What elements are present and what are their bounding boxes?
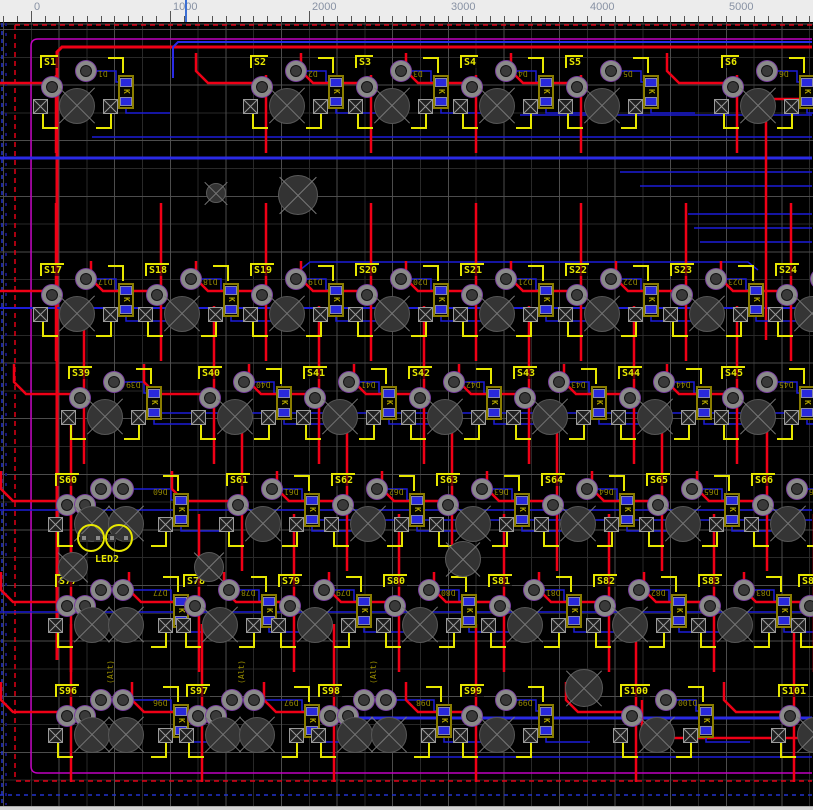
alignment-pad-icon (639, 517, 654, 532)
switch-footprint[interactable]: S98(Alt)KD98 (312, 682, 452, 762)
silkscreen-corner-icon (357, 113, 373, 129)
silkscreen-corner-icon (151, 531, 167, 547)
alignment-pad-icon (158, 728, 173, 743)
switch-footprint[interactable]: S83KD83 (692, 572, 792, 652)
switch-stem (217, 399, 253, 435)
cathode-mark-icon: K (570, 608, 578, 618)
silkscreen-corner-icon (754, 632, 770, 648)
diode-reference-label: D1 (98, 69, 108, 77)
cathode-mark-icon: K (332, 89, 340, 99)
switch-footprint[interactable]: S4KD4 (454, 53, 554, 133)
led-pad (122, 534, 130, 542)
through-hole-pad (314, 580, 334, 600)
silkscreen-corner-icon (411, 113, 427, 129)
switch-footprint[interactable]: S64KD64 (535, 471, 635, 551)
alignment-pad-icon (418, 99, 433, 114)
diode-reference-label: D39 (126, 380, 140, 388)
smd-pad (516, 496, 528, 505)
switch-reference-label: S21 (460, 263, 484, 276)
smd-pad (568, 597, 580, 606)
silkscreen-corner-icon (252, 321, 268, 337)
led-pad (94, 534, 102, 542)
diode-reference-label: D41 (361, 380, 375, 388)
alignment-pad-icon (576, 410, 591, 425)
diode-footprint: K (146, 386, 162, 420)
silkscreen-corner-icon (620, 424, 636, 440)
diode-footprint: K (436, 704, 452, 738)
switch-reference-label: S4 (460, 55, 478, 68)
silkscreen-corner-icon (359, 424, 375, 440)
silkscreen-corner-icon (411, 321, 427, 337)
silkscreen-corner-icon (648, 531, 664, 547)
through-hole-pad (113, 690, 133, 710)
cathode-mark-icon: K (803, 89, 811, 99)
switch-footprint[interactable]: S45KD45 (715, 364, 813, 444)
diode-reference-label: D77 (153, 588, 167, 596)
silkscreen-corner-icon (439, 632, 455, 648)
alignment-pad-icon (784, 99, 799, 114)
diode-reference-label: D17 (98, 277, 112, 285)
switch-footprint[interactable]: S101KD101 (772, 682, 813, 762)
switch-reference-label: S44 (618, 366, 642, 379)
diode-footprint: K (799, 386, 813, 420)
diode-reference-label: D40 (256, 380, 270, 388)
smd-pad (540, 707, 552, 716)
diode-footprint: K (461, 594, 477, 628)
silkscreen-corner-icon (318, 57, 334, 73)
diode-reference-label: D20 (413, 277, 427, 285)
silkscreen-corner-icon (188, 742, 204, 758)
diode-footprint: K (486, 386, 502, 420)
cathode-mark-icon: K (465, 608, 473, 618)
alignment-pad-icon (681, 410, 696, 425)
switch-footprint[interactable]: S80KD80 (377, 572, 477, 652)
silkscreen-corner-icon (320, 742, 336, 758)
diode-footprint: K (304, 493, 320, 527)
ruler-unit-label: 3000 (451, 1, 475, 13)
silkscreen-corner-icon (726, 321, 742, 337)
switch-stem (205, 717, 241, 753)
silkscreen-corner-icon (597, 531, 613, 547)
alignment-pad-icon (366, 410, 381, 425)
switch-footprint[interactable]: S84KD84 (792, 572, 813, 652)
through-hole-pad (91, 690, 111, 710)
ruler-tick (31, 11, 32, 22)
switch-footprint[interactable]: S82KD82 (587, 572, 687, 652)
switch-footprint[interactable]: S100KD100 (614, 682, 714, 762)
diode-reference-label: D62 (389, 487, 403, 495)
through-hole-pad (234, 372, 254, 392)
switch-footprint[interactable]: S24KD24 (769, 261, 813, 341)
alignment-pad-icon (179, 728, 194, 743)
switch-reference-label: S23 (670, 263, 694, 276)
alignment-pad-icon (453, 99, 468, 114)
through-hole-pad (601, 269, 621, 289)
cathode-mark-icon: K (542, 89, 550, 99)
switch-reference-label: S82 (593, 574, 617, 587)
switch-footprint[interactable]: S17KD17 (34, 261, 134, 341)
silkscreen-corner-icon (70, 424, 86, 440)
switch-stem (770, 506, 806, 542)
alignment-pad-icon (289, 728, 304, 743)
switch-stem (59, 296, 95, 332)
diode-footprint: K (748, 283, 764, 317)
silkscreen-corner-icon (672, 321, 688, 337)
switch-stem (479, 717, 515, 753)
diode-footprint: K (118, 75, 134, 109)
silkscreen-corner-icon (385, 632, 401, 648)
silkscreen-corner-icon (543, 531, 559, 547)
diode-footprint: K (724, 493, 740, 527)
switch-stem (402, 607, 438, 643)
alignment-pad-icon (691, 618, 706, 633)
through-hole-pad (376, 690, 396, 710)
switch-footprint[interactable]: S42KD42 (402, 364, 502, 444)
diode-reference-label: D96 (153, 698, 167, 706)
diode-reference-label: D42 (466, 380, 480, 388)
switch-footprint[interactable]: S63KD63 (430, 471, 530, 551)
switch-footprint[interactable]: S20KD20 (349, 261, 449, 341)
diode-reference-label: D45 (779, 380, 793, 388)
diode-footprint: K (328, 75, 344, 109)
diode-footprint: K (538, 704, 554, 738)
smd-pad (330, 286, 342, 295)
switch-stem (108, 607, 144, 643)
switch-stem (612, 607, 648, 643)
smd-pad (698, 389, 710, 398)
silkscreen-corner-icon (306, 113, 322, 129)
switch-stem (164, 296, 200, 332)
alignment-pad-icon (348, 307, 363, 322)
switch-footprint[interactable]: S99KD99 (454, 682, 554, 762)
switch-stem (665, 506, 701, 542)
smd-pad (411, 496, 423, 505)
switch-reference-label: S98 (318, 684, 342, 697)
switch-stem (532, 399, 568, 435)
silkscreen-corner-icon (239, 632, 255, 648)
switch-stem (269, 296, 305, 332)
alignment-pad-icon (791, 618, 806, 633)
switch-stem (374, 296, 410, 332)
cathode-mark-icon: K (385, 400, 393, 410)
diode-footprint: K (538, 75, 554, 109)
cathode-mark-icon: K (227, 297, 235, 307)
alignment-pad-icon (324, 517, 339, 532)
smd-pad (673, 597, 685, 606)
silkscreen-corner-icon (201, 321, 217, 337)
switch-stem (108, 717, 144, 753)
diode-footprint: K (566, 594, 582, 628)
silkscreen-corner-icon (96, 113, 112, 129)
switch-stem (245, 506, 281, 542)
alignment-pad-icon (313, 307, 328, 322)
switch-footprint[interactable]: S41KD41 (297, 364, 397, 444)
diode-footprint: K (538, 283, 554, 317)
silkscreen-corner-icon (544, 632, 560, 648)
alignment-pad-icon (471, 410, 486, 425)
switch-reference-label: S40 (198, 366, 222, 379)
cathode-mark-icon: K (332, 297, 340, 307)
through-hole-pad (419, 580, 439, 600)
diode-reference-label: D78 (241, 588, 255, 596)
through-hole-pad (629, 580, 649, 600)
switch-stem (740, 399, 776, 435)
through-hole-pad (391, 61, 411, 81)
switch-stem (74, 607, 110, 643)
diode-reference-label: D60 (153, 487, 167, 495)
switch-footprint[interactable]: S6KD6 (715, 53, 813, 133)
horizontal-ruler[interactable]: 010002000300040005000 (0, 0, 813, 23)
smd-pad (621, 496, 633, 505)
alignment-pad-icon (523, 307, 538, 322)
alignment-pad-icon (744, 517, 759, 532)
switch-footprint[interactable]: S39KD39 (62, 364, 162, 444)
diode-footprint: K (409, 493, 425, 527)
silkscreen-corner-icon (280, 632, 296, 648)
silkscreen-corner-icon (516, 742, 532, 758)
switch-stem (371, 717, 407, 753)
switch-stem (337, 717, 373, 753)
alignment-pad-icon (771, 728, 786, 743)
diode-reference-label: D83 (756, 588, 770, 596)
switch-caption-label: (Alt) (370, 660, 378, 684)
through-hole-pad (113, 580, 133, 600)
alignment-pad-icon (523, 99, 538, 114)
mounting-hole (278, 175, 318, 215)
through-hole-pad (262, 479, 282, 499)
switch-reference-label: S45 (721, 366, 745, 379)
switch-stem (797, 717, 813, 753)
silkscreen-corner-icon (674, 424, 690, 440)
switch-reference-label: S17 (40, 263, 64, 276)
through-hole-pad (113, 479, 133, 499)
smd-pad (488, 389, 500, 398)
silkscreen-corner-icon (569, 424, 585, 440)
alignment-pad-icon (784, 410, 799, 425)
alignment-pad-icon (421, 728, 436, 743)
switch-footprint[interactable]: S43KD43 (507, 364, 607, 444)
through-hole-pad (339, 372, 359, 392)
switch-footprint[interactable]: S77KD77 (49, 572, 189, 652)
switch-reference-label: S63 (436, 473, 460, 486)
switch-stem (584, 88, 620, 124)
silkscreen-corner-icon (151, 742, 167, 758)
diode-footprint: K (776, 594, 792, 628)
silkscreen-corner-icon (516, 321, 532, 337)
switch-reference-label: S65 (646, 473, 670, 486)
led-pad-ring (105, 524, 133, 552)
cathode-mark-icon: K (437, 297, 445, 307)
switch-stem (639, 717, 675, 753)
switch-reference-label: S99 (460, 684, 484, 697)
switch-footprint[interactable]: S18KD18 (139, 261, 239, 341)
switch-footprint[interactable]: S61KD61 (220, 471, 320, 551)
switch-stem (374, 88, 410, 124)
alignment-pad-icon (558, 99, 573, 114)
silkscreen-corner-icon (414, 742, 430, 758)
switch-footprint[interactable]: S65KD65 (640, 471, 740, 551)
silkscreen-corner-icon (305, 424, 321, 440)
silkscreen-corner-icon (649, 632, 665, 648)
switch-reference-label: S2 (250, 55, 268, 68)
smd-pad (278, 389, 290, 398)
switch-footprint[interactable]: S40KD40 (192, 364, 292, 444)
through-hole-pad (524, 580, 544, 600)
switch-footprint[interactable]: S22KD22 (559, 261, 659, 341)
through-hole-pad (656, 690, 676, 710)
silkscreen-corner-icon (595, 632, 611, 648)
diode-footprint: K (433, 283, 449, 317)
silkscreen-corner-icon (333, 531, 349, 547)
silkscreen-corner-icon (147, 321, 163, 337)
alignment-pad-icon (48, 728, 63, 743)
switch-footprint[interactable]: S44KD44 (612, 364, 712, 444)
switch-stem (717, 607, 753, 643)
silkscreen-corner-icon (528, 57, 544, 73)
cathode-mark-icon: K (702, 718, 710, 728)
silkscreen-corner-icon (462, 113, 478, 129)
switch-footprint[interactable]: S62KD62 (325, 471, 425, 551)
diode-footprint: K (118, 283, 134, 317)
diode-reference-label: D18 (203, 277, 217, 285)
alignment-pad-icon (394, 517, 409, 532)
through-hole-pad (577, 479, 597, 499)
smd-pad (435, 78, 447, 87)
diode-reference-label: D22 (623, 277, 637, 285)
through-hole-pad (104, 372, 124, 392)
switch-footprint[interactable]: S1KD1 (34, 53, 134, 133)
alignment-pad-icon (246, 618, 261, 633)
silkscreen-corner-icon (228, 531, 244, 547)
alignment-pad-icon (446, 618, 461, 633)
alignment-pad-icon (176, 618, 191, 633)
through-hole-pad (181, 269, 201, 289)
switch-footprint[interactable]: S19KD19 (244, 261, 344, 341)
alignment-pad-icon (613, 728, 628, 743)
switch-footprint[interactable]: S78KD78 (177, 572, 277, 652)
silkscreen-corner-icon (410, 424, 426, 440)
switch-reference-label: S6 (721, 55, 739, 68)
silkscreen-corner-icon (124, 424, 140, 440)
alignment-pad-icon (481, 618, 496, 633)
switch-footprint[interactable]: S97(Alt)KD97 (180, 682, 320, 762)
switch-reference-label: S83 (698, 574, 722, 587)
switch-footprint[interactable]: S5KD5 (559, 53, 659, 133)
diode-reference-label: D80 (441, 588, 455, 596)
alignment-pad-icon (243, 307, 258, 322)
switch-stem (59, 88, 95, 124)
diode-footprint: K (619, 493, 635, 527)
silkscreen-corner-icon (151, 632, 167, 648)
alignment-pad-icon (33, 99, 48, 114)
silkscreen-corner-icon (462, 742, 478, 758)
switch-footprint[interactable]: S81KD81 (482, 572, 582, 652)
through-hole-pad (734, 580, 754, 600)
switch-caption-label: (Alt) (238, 660, 246, 684)
cathode-mark-icon: K (623, 507, 631, 517)
switch-stem (584, 296, 620, 332)
alignment-pad-icon (401, 410, 416, 425)
diode-reference-label: D61 (284, 487, 298, 495)
alignment-pad-icon (191, 410, 206, 425)
mounting-hole (445, 541, 481, 577)
through-hole-pad (391, 269, 411, 289)
switch-stem (87, 399, 123, 435)
silkscreen-corner-icon (753, 531, 769, 547)
switch-caption-label: (Alt) (107, 660, 115, 684)
horizontal-scrollbar[interactable] (0, 806, 813, 810)
alignment-pad-icon (506, 410, 521, 425)
diode-footprint: K (223, 283, 239, 317)
silkscreen-corner-icon (807, 531, 813, 547)
switch-footprint[interactable]: S21KD21 (454, 261, 554, 341)
alignment-pad-icon (348, 99, 363, 114)
alignment-pad-icon (551, 618, 566, 633)
silkscreen-corner-icon (464, 424, 480, 440)
switch-stem (269, 88, 305, 124)
alignment-pad-icon (604, 517, 619, 532)
alignment-pad-icon (271, 618, 286, 633)
silkscreen-corner-icon (282, 531, 298, 547)
alignment-pad-icon (261, 410, 276, 425)
switch-reference-label: S22 (565, 263, 589, 276)
cathode-mark-icon: K (595, 400, 603, 410)
switch-reference-label: S66 (751, 473, 775, 486)
diode-reference-label: D99 (518, 698, 532, 706)
silkscreen-corner-icon (780, 742, 796, 758)
switch-reference-label: S80 (383, 574, 407, 587)
switch-footprint[interactable]: S23KD23 (664, 261, 764, 341)
alignment-pad-icon (453, 307, 468, 322)
switch-stem (637, 399, 673, 435)
alignment-pad-icon (103, 99, 118, 114)
silkscreen-corner-icon (633, 57, 649, 73)
smd-pad (358, 597, 370, 606)
alignment-pad-icon (296, 410, 311, 425)
switch-stem (239, 717, 275, 753)
diode-reference-label: D97 (284, 698, 298, 706)
pcb-canvas[interactable]: S1KD1S2KD2S3KD3S4KD4S5KD5S6KD6S17KD17S18… (0, 22, 813, 806)
cathode-mark-icon: K (647, 89, 655, 99)
switch-footprint[interactable]: S66KD66 (745, 471, 813, 551)
switch-footprint[interactable]: S96(Alt)KD96 (49, 682, 189, 762)
alignment-pad-icon (418, 307, 433, 322)
through-hole-pad (91, 580, 111, 600)
smd-pad (175, 496, 187, 505)
smd-pad (645, 78, 657, 87)
cathode-mark-icon: K (728, 507, 736, 517)
smd-pad (593, 389, 605, 398)
silkscreen-corner-icon (567, 113, 583, 129)
diode-reference-label: D6 (779, 69, 789, 77)
through-hole-pad (91, 479, 111, 499)
silkscreen-corner-icon (777, 424, 793, 440)
silkscreen-corner-icon (387, 531, 403, 547)
cathode-mark-icon: K (647, 297, 655, 307)
alignment-pad-icon (289, 517, 304, 532)
mounting-hole (194, 552, 224, 582)
switch-footprint[interactable]: S3KD3 (349, 53, 449, 133)
switch-footprint[interactable]: S79KD79 (272, 572, 372, 652)
smd-pad (438, 707, 450, 716)
through-hole-pad (219, 580, 239, 600)
switch-footprint[interactable]: S2KD2 (244, 53, 344, 133)
switch-reference-label: S81 (488, 574, 512, 587)
alignment-pad-icon (313, 99, 328, 114)
ruler-unit-label: 0 (34, 1, 40, 13)
switch-reference-label: S79 (278, 574, 302, 587)
diode-footprint: K (276, 386, 292, 420)
